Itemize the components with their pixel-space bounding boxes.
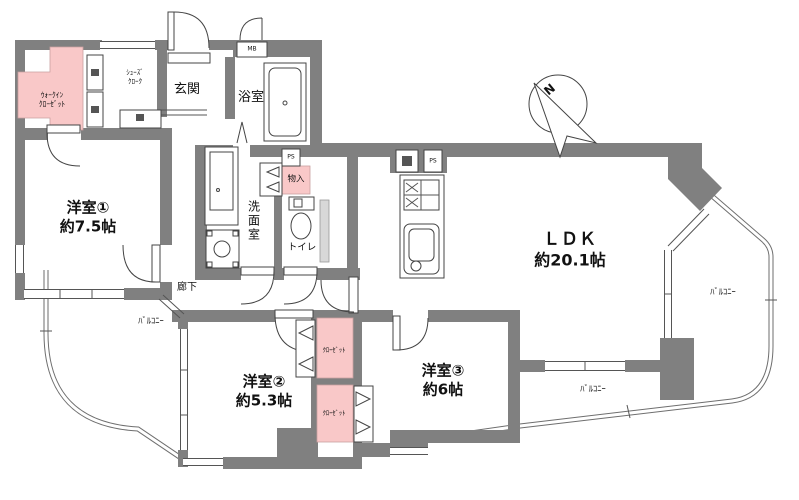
floor-plan-canvas (0, 0, 799, 500)
genkan-label: 玄関 (174, 82, 200, 98)
closet-upper-label: ｸﾛｰｾﾞｯﾄ (323, 346, 346, 354)
balcony-bottom-label: ﾊﾞﾙｺﾆｰ (580, 385, 606, 396)
room3-label: 洋室③ 約6帖 (422, 361, 465, 399)
vanity-icon (205, 147, 238, 225)
ldk-label: ＬＤＫ 約20.1帖 (534, 229, 605, 270)
shoe-cabinet-icon (87, 55, 161, 128)
washing-machine-icon (206, 230, 239, 268)
toilet-label: トイレ (288, 242, 317, 254)
balcony-right-label: ﾊﾞﾙｺﾆｰ (710, 288, 736, 299)
bathtub-icon (264, 63, 306, 141)
bathroom-label: 浴室 (238, 90, 264, 106)
kitchen-icon (400, 175, 444, 278)
ps-bath-label: PS (287, 153, 294, 161)
shoes-cloak-label: ｼｭｰｽﾞ ｸﾛｰｸ (126, 68, 144, 86)
room1-label: 洋室① 約7.5帖 (60, 198, 117, 236)
closet-lower-label: ｸﾛｰｾﾞｯﾄ (323, 409, 346, 417)
washroom-label: 洗面室 (246, 200, 261, 242)
corridor-label: 廊下 (177, 282, 197, 295)
floor-plan: ｳｫｰｸｲﾝ ｸﾛｰｾﾞｯﾄ ｼｭｰｽﾞ ｸﾛｰｸ 玄関 浴室 洗面室 物入 ト… (0, 0, 799, 500)
ps-kitchen-label: PS (429, 157, 436, 165)
walk-in-closet-label: ｳｫｰｸｲﾝ ｸﾛｰｾﾞｯﾄ (39, 91, 65, 110)
room2-label: 洋室② 約5.3帖 (236, 372, 293, 410)
mono-ire-label: 物入 (287, 175, 304, 186)
mb-label: MB (247, 45, 256, 53)
balcony-left-label: ﾊﾞﾙｺﾆｰ (138, 317, 164, 328)
